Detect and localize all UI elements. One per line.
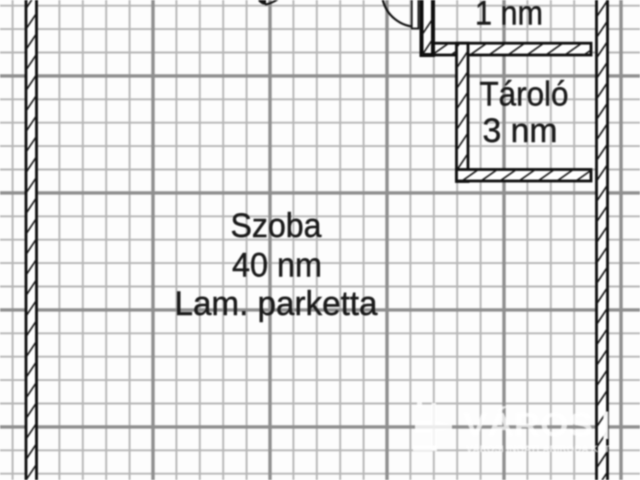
svg-text:3 nm: 3 nm (483, 112, 558, 150)
svg-text:VÁROS: VÁROS (463, 406, 593, 443)
svg-text:1 nm: 1 nm (475, 0, 543, 33)
svg-text:40 nm: 40 nm (232, 247, 322, 285)
svg-text:Tároló: Tároló (480, 76, 569, 114)
svg-text:Lam. parketta: Lam. parketta (175, 285, 378, 323)
svg-text:Szoba: Szoba (231, 207, 322, 245)
svg-text:VÁROSI INGATLANIRODA KFT: VÁROSI INGATLANIRODA KFT (466, 444, 611, 454)
